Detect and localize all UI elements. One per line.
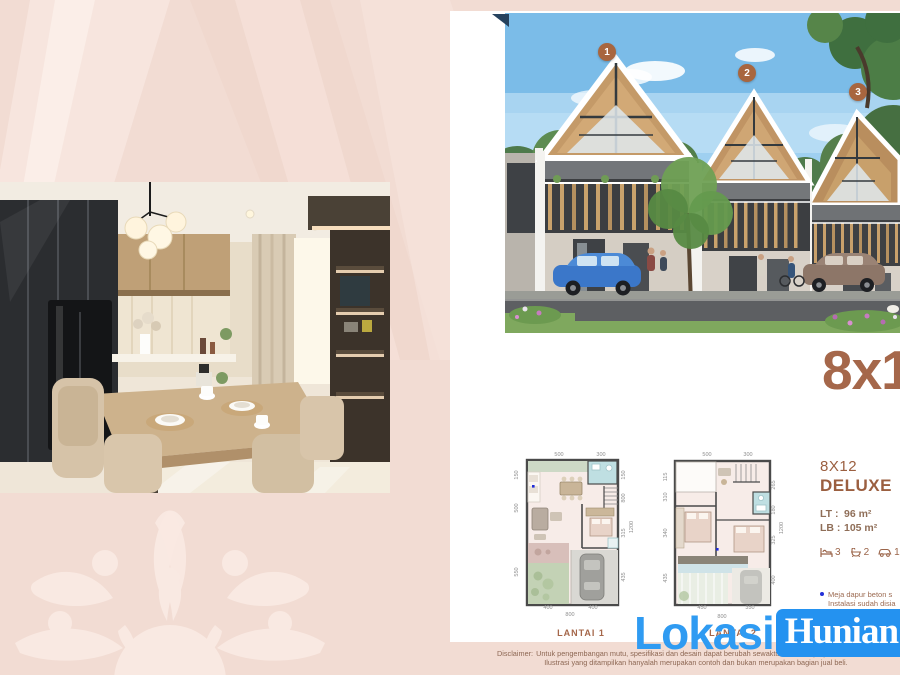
lokasi-hunian-watermark: Lokasi Hunian	[634, 606, 900, 660]
plan-dimension-label: 310	[663, 492, 669, 501]
plan-dimension-label: 300	[743, 452, 752, 458]
plan-dimension-label: 800	[565, 612, 574, 618]
size-headline: 8x12	[822, 338, 900, 402]
plan-dimension-label: 150	[621, 470, 627, 479]
plan-dimension-label: 550	[514, 567, 520, 576]
unit-type: 8X12	[820, 458, 900, 475]
bathroom-value: 2	[864, 547, 870, 558]
plan-dimension-label: 300	[596, 452, 605, 458]
plan-dimension-label: 1200	[779, 522, 785, 534]
bullet-dot	[820, 592, 824, 596]
car-icon	[878, 548, 892, 557]
corner-accent-triangle	[492, 13, 509, 27]
plan-dimension-label: 115	[663, 473, 669, 482]
carport-count: 1	[878, 547, 900, 558]
floorplan-1-drawing	[508, 448, 654, 623]
plan-dimension-label: 265	[771, 480, 777, 489]
floorplan-lantai-1: LANTAI 1 5003001505005501508003154351200…	[508, 448, 654, 640]
bath-icon	[850, 548, 862, 557]
plan-dimension-label: 325	[771, 535, 777, 544]
plan-dimension-label: 435	[621, 572, 627, 581]
lt-label: LT :	[820, 508, 844, 520]
bedroom-count: 3	[820, 547, 841, 558]
unit-marker-3: 3	[849, 83, 867, 101]
lb-label: LB :	[820, 522, 844, 534]
plan-dimension-label: 500	[554, 452, 563, 458]
plan-dimension-label: 180	[771, 505, 777, 514]
lt-value: 96 m²	[844, 508, 871, 520]
bed-icon	[820, 548, 833, 557]
unit-marker-2: 2	[738, 64, 756, 82]
plan-dimension-label: 400	[771, 575, 777, 584]
bedroom-value: 3	[835, 547, 841, 558]
carport-value: 1	[894, 547, 900, 558]
plan-dimension-label: 340	[663, 528, 669, 537]
bathroom-count: 2	[850, 547, 870, 558]
lb-value: 105 m²	[844, 522, 877, 534]
disclaimer-prefix: Disclaimer:	[497, 649, 533, 658]
plan-dimension-label: 1200	[629, 521, 635, 533]
plan-dimension-label: 500	[514, 503, 520, 512]
plan-dimension-label: 435	[663, 573, 669, 582]
plan-dimension-label: 400	[543, 605, 552, 611]
interior-photo	[0, 182, 390, 493]
damask-ornament	[5, 493, 335, 675]
plan-dimension-label: 800	[621, 493, 627, 502]
floorplan-2-drawing	[658, 448, 808, 623]
watermark-badge-hunian: Hunian	[776, 609, 900, 657]
unit-marker-1: 1	[598, 43, 616, 61]
plan-label: LANTAI 1	[508, 628, 654, 638]
building-area-row: LB : 105 m²	[820, 522, 900, 534]
land-area-row: LT : 96 m²	[820, 508, 900, 520]
plan-dimension-label: 315	[621, 528, 627, 537]
plan-dimension-label: 150	[514, 470, 520, 479]
brochure-page: { "page": { "size_headline": "8x12", "di…	[0, 0, 900, 675]
plan-dimension-label: 500	[702, 452, 711, 458]
watermark-text-lokasi: Lokasi	[634, 606, 774, 660]
plan-dimension-label: 400	[588, 605, 597, 611]
house-render-photo	[505, 13, 900, 333]
unit-variant: DELUXE	[820, 476, 900, 496]
feature-line: Meja dapur beton s	[828, 590, 896, 599]
